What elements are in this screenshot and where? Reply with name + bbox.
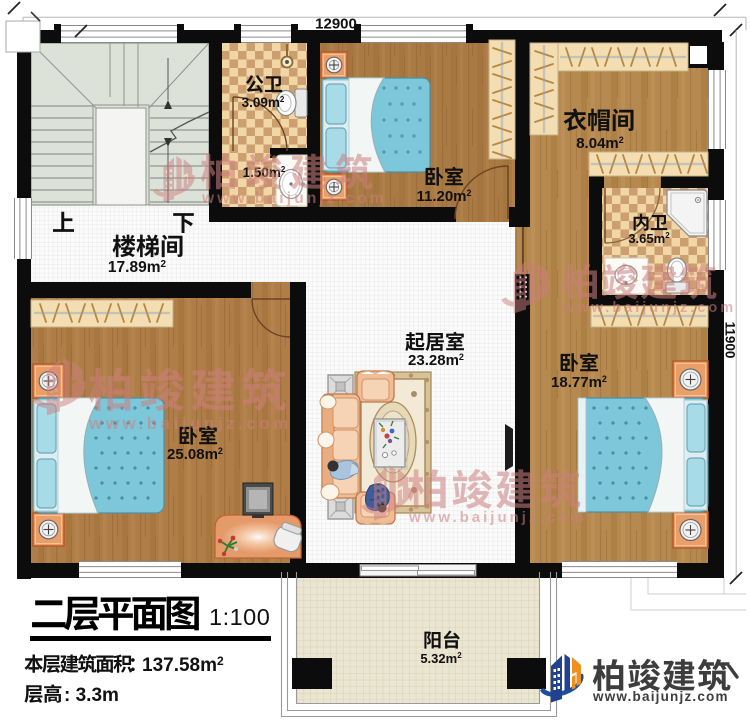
svg-text:3.09m2: 3.09m2 (242, 95, 285, 110)
svg-text:3.65m2: 3.65m2 (628, 231, 670, 246)
svg-text:137.58m2: 137.58m2 (142, 654, 224, 676)
svg-text:23.28m2: 23.28m2 (408, 352, 464, 369)
svg-text:11900: 11900 (723, 322, 738, 359)
svg-text:5.32m2: 5.32m2 (420, 651, 462, 666)
svg-text:1:100: 1:100 (209, 604, 270, 630)
svg-text:11.20m2: 11.20m2 (416, 188, 471, 205)
svg-text:www.baijunjz.com: www.baijunjz.com (562, 300, 736, 316)
svg-text:18.77m2: 18.77m2 (551, 374, 607, 391)
svg-text:12900: 12900 (315, 16, 357, 33)
svg-text:17.89m2: 17.89m2 (108, 259, 167, 276)
svg-text:www.baijunjz.com: www.baijunjz.com (88, 414, 292, 433)
svg-text:: 3.3m: : 3.3m (64, 685, 119, 706)
svg-text:25.08m2: 25.08m2 (167, 446, 223, 463)
svg-text:www.baijunjz.com: www.baijunjz.com (592, 689, 729, 704)
svg-text:www.baijunjz.com: www.baijunjz.com (408, 509, 586, 526)
svg-text:8.04m2: 8.04m2 (576, 135, 624, 152)
svg-text:www.baijunjz.com: www.baijunjz.com (201, 190, 387, 207)
